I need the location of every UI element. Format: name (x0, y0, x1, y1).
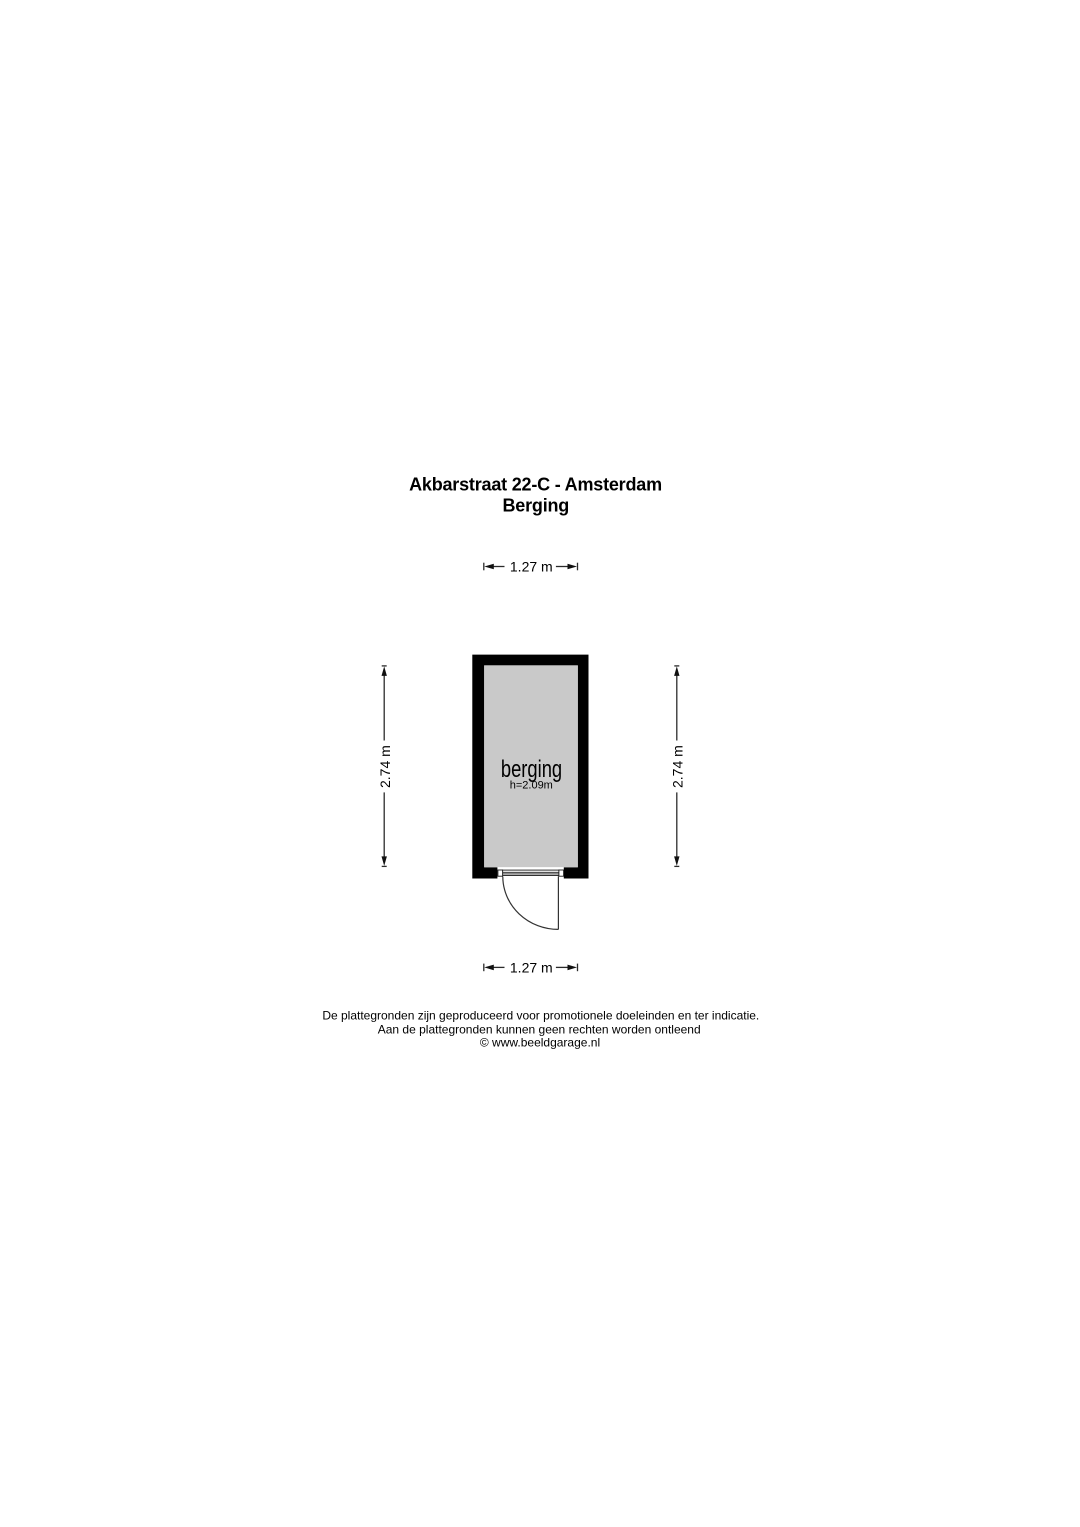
svg-text:2.74 m: 2.74 m (377, 745, 393, 788)
svg-text:De plattegronden zijn geproduc: De plattegronden zijn geproduceerd voor … (322, 1009, 759, 1023)
svg-text:© www.beeldgarage.nl: © www.beeldgarage.nl (480, 1035, 600, 1049)
svg-text:2.74 m: 2.74 m (670, 745, 686, 788)
svg-text:Aan de plattegronden kunnen ge: Aan de plattegronden kunnen geen rechten… (378, 1022, 701, 1036)
svg-text:h=2.09m: h=2.09m (510, 780, 553, 792)
svg-text:Berging: Berging (502, 495, 569, 515)
svg-text:1.27 m: 1.27 m (510, 559, 553, 575)
svg-text:1.27 m: 1.27 m (510, 960, 553, 976)
svg-text:Akbarstraat 22-C - Amsterdam: Akbarstraat 22-C - Amsterdam (409, 475, 662, 495)
